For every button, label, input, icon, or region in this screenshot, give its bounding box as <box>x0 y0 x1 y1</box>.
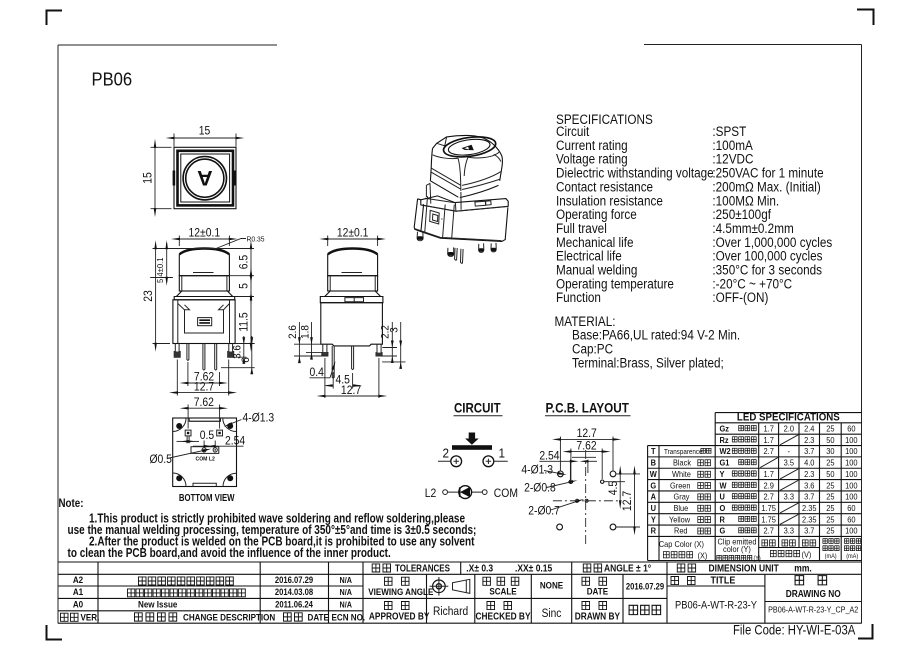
svg-text:Gray: Gray <box>674 492 690 501</box>
svg-text:-: - <box>788 447 791 456</box>
svg-text:50: 50 <box>826 436 835 445</box>
svg-text:.XX± 0.15: .XX± 0.15 <box>515 563 552 574</box>
svg-text:New Issue: New Issue <box>138 599 178 610</box>
svg-text:U: U <box>651 504 657 513</box>
svg-text:25: 25 <box>826 458 835 467</box>
svg-text:TOLERANCES: TOLERANCES <box>395 562 450 573</box>
svg-text:2.4: 2.4 <box>804 424 815 433</box>
svg-text:12±0.1: 12±0.1 <box>189 227 221 240</box>
svg-text:color (Y): color (Y) <box>723 544 751 553</box>
svg-text:2-Ø0.8: 2-Ø0.8 <box>524 482 556 495</box>
svg-text:3.5: 3.5 <box>784 458 795 467</box>
svg-text:100: 100 <box>845 447 858 456</box>
svg-text:A1: A1 <box>73 587 83 598</box>
svg-text:COM L2: COM L2 <box>196 456 215 462</box>
svg-text:W: W <box>720 481 728 490</box>
svg-text:DRAWN BY: DRAWN BY <box>575 611 620 622</box>
svg-text:R: R <box>651 526 657 535</box>
svg-text:NONE: NONE <box>540 580 563 591</box>
svg-text:100: 100 <box>845 470 858 479</box>
svg-text:60: 60 <box>847 424 856 433</box>
svg-text:2016.07.29: 2016.07.29 <box>275 575 314 586</box>
svg-text:N/A: N/A <box>339 600 352 610</box>
svg-text:100: 100 <box>845 458 858 467</box>
svg-text:7.62: 7.62 <box>576 440 596 453</box>
svg-text:3.7: 3.7 <box>804 447 814 456</box>
svg-text:3.6: 3.6 <box>804 481 815 490</box>
svg-text:25: 25 <box>826 481 835 490</box>
svg-text:1.75: 1.75 <box>761 515 776 524</box>
svg-text:2.7: 2.7 <box>763 526 773 535</box>
svg-text::OFF-(ON): :OFF-(ON) <box>712 289 768 305</box>
svg-text:3.7: 3.7 <box>804 492 814 501</box>
svg-text:COM: COM <box>494 487 518 500</box>
svg-text:12.7: 12.7 <box>622 491 635 511</box>
svg-text:Green: Green <box>670 481 691 490</box>
svg-text:Cap Color (X): Cap Color (X) <box>659 540 704 549</box>
svg-text:2.35: 2.35 <box>802 515 817 524</box>
svg-text:5.4±0.1: 5.4±0.1 <box>156 257 165 283</box>
svg-text:APPROVED BY: APPROVED BY <box>369 611 430 622</box>
svg-text:File Code: HY-WI-E-03A: File Code: HY-WI-E-03A <box>733 623 856 638</box>
svg-text:100: 100 <box>845 492 858 501</box>
svg-text:DIMENSION UNIT: DIMENSION UNIT <box>709 563 780 574</box>
svg-text:(mA): (mA) <box>846 554 858 560</box>
svg-text:100: 100 <box>845 481 858 490</box>
svg-text:L2: L2 <box>425 487 437 500</box>
svg-text:1.7: 1.7 <box>763 424 773 433</box>
svg-text:4.5: 4.5 <box>607 481 620 495</box>
svg-text:2.9: 2.9 <box>763 481 773 490</box>
svg-text:50: 50 <box>826 470 835 479</box>
svg-text:T: T <box>651 447 656 456</box>
svg-text:2.0: 2.0 <box>784 424 795 433</box>
svg-text:CHANGE DESCRIPTION: CHANGE DESCRIPTION <box>183 612 275 623</box>
svg-text:25: 25 <box>826 515 835 524</box>
svg-text:Black: Black <box>673 458 691 467</box>
svg-text:G1: G1 <box>720 458 731 467</box>
svg-text:2.7: 2.7 <box>763 492 773 501</box>
svg-text:PB06-A-WT-R-23-Y: PB06-A-WT-R-23-Y <box>675 600 757 612</box>
svg-text:W2: W2 <box>720 447 732 456</box>
svg-text:Transparence: Transparence <box>664 449 703 456</box>
svg-text:12.7: 12.7 <box>577 428 597 441</box>
svg-text:(V): (V) <box>802 550 812 559</box>
svg-text:W: W <box>650 470 658 479</box>
svg-text:2-Ø0.7: 2-Ø0.7 <box>528 505 560 518</box>
svg-text:ECN NO.: ECN NO. <box>332 612 366 623</box>
svg-text:2.35: 2.35 <box>802 504 817 513</box>
svg-text:1.7: 1.7 <box>763 436 773 445</box>
svg-text:3.3: 3.3 <box>784 526 795 535</box>
svg-text:Note:: Note: <box>59 497 84 510</box>
svg-text:O: O <box>720 504 726 513</box>
svg-text:0.5: 0.5 <box>200 430 214 443</box>
svg-text:25: 25 <box>826 504 835 513</box>
svg-text:1.8: 1.8 <box>300 325 312 339</box>
svg-text:1.75: 1.75 <box>761 504 776 513</box>
svg-text:2.3: 2.3 <box>804 436 815 445</box>
svg-text:Yellow: Yellow <box>669 515 690 524</box>
svg-text:SCALE: SCALE <box>489 586 516 597</box>
svg-text:0.4: 0.4 <box>310 367 324 380</box>
svg-text:Gz: Gz <box>720 424 730 433</box>
svg-text:G: G <box>720 526 726 535</box>
svg-text:3.7: 3.7 <box>804 526 814 535</box>
svg-text:23: 23 <box>142 290 155 302</box>
svg-text:1.7: 1.7 <box>763 470 773 479</box>
svg-text:A2: A2 <box>73 575 83 586</box>
svg-text:DATE: DATE <box>308 612 329 623</box>
svg-text:P.C.B. LAYOUT: P.C.B. LAYOUT <box>546 400 630 416</box>
svg-text:2.54: 2.54 <box>225 435 245 448</box>
svg-text:to clean the PCB board,and avo: to clean the PCB board,and avoid the inf… <box>68 547 391 560</box>
svg-text:4-Ø1.3: 4-Ø1.3 <box>521 464 553 477</box>
svg-text:DRAWING NO: DRAWING NO <box>786 588 841 599</box>
svg-text:2016.07.29: 2016.07.29 <box>626 581 665 592</box>
svg-text:60: 60 <box>847 504 856 513</box>
svg-text:(X): (X) <box>698 551 708 560</box>
svg-text:2014.03.08: 2014.03.08 <box>275 587 314 598</box>
svg-text:DATE: DATE <box>587 586 608 597</box>
svg-text:2: 2 <box>443 446 450 461</box>
svg-text:12.7: 12.7 <box>194 381 214 394</box>
svg-text:5: 5 <box>238 283 251 289</box>
svg-text:15: 15 <box>142 172 155 184</box>
svg-text:CIRCUIT: CIRCUIT <box>454 401 501 416</box>
svg-text:Ø0.5: Ø0.5 <box>150 454 172 467</box>
svg-text:CHECKED BY: CHECKED BY <box>476 611 531 622</box>
svg-text:A: A <box>651 492 657 501</box>
svg-text:(Y): (Y) <box>754 556 761 562</box>
svg-text:BOTTOM VIEW: BOTTOM VIEW <box>179 492 235 503</box>
svg-text:R0.35: R0.35 <box>247 235 265 243</box>
svg-text:11.5: 11.5 <box>238 312 251 331</box>
svg-text:Y: Y <box>720 470 726 479</box>
svg-text:4.0: 4.0 <box>804 458 815 467</box>
svg-text:Function: Function <box>556 289 601 305</box>
svg-text:mm.: mm. <box>794 563 811 574</box>
svg-text:Richard: Richard <box>433 606 468 619</box>
svg-text:TITLE: TITLE <box>711 575 736 587</box>
svg-text:White: White <box>672 470 691 479</box>
svg-text:PB06: PB06 <box>92 69 133 90</box>
svg-text:PB06-A-WT-R-23-Y_CP_A2: PB06-A-WT-R-23-Y_CP_A2 <box>768 605 858 615</box>
svg-text:(mA): (mA) <box>825 554 837 560</box>
svg-text:N/A: N/A <box>339 588 352 598</box>
svg-text:ANGLE ± 1°: ANGLE ± 1° <box>604 563 651 574</box>
svg-text:2.6: 2.6 <box>288 325 300 339</box>
svg-text:.X± 0.3: .X± 0.3 <box>466 563 493 574</box>
svg-text:Y: Y <box>651 515 657 524</box>
svg-text:1: 1 <box>499 446 506 461</box>
svg-text:12.7: 12.7 <box>341 385 361 398</box>
svg-text:6.5: 6.5 <box>238 255 251 269</box>
svg-text:2011.06.24: 2011.06.24 <box>275 599 313 610</box>
svg-text:N/A: N/A <box>339 576 352 586</box>
svg-text:60: 60 <box>847 515 856 524</box>
svg-text:3: 3 <box>389 327 401 333</box>
svg-text:A0: A0 <box>73 599 83 610</box>
svg-text:4-Ø1.3: 4-Ø1.3 <box>243 412 275 425</box>
svg-text:100: 100 <box>845 526 858 535</box>
svg-text:Sinc: Sinc <box>542 607 562 620</box>
svg-text:15: 15 <box>199 125 211 138</box>
svg-text:Terminal:Brass, Silver plated;: Terminal:Brass, Silver plated; <box>572 355 724 371</box>
svg-text:7.62: 7.62 <box>194 396 214 409</box>
svg-text:G: G <box>650 481 656 490</box>
svg-text:12±0.1: 12±0.1 <box>337 227 369 240</box>
svg-text:VER.: VER. <box>81 612 100 623</box>
svg-text:VIEWING ANGLE: VIEWING ANGLE <box>368 587 433 598</box>
svg-text:R: R <box>720 515 726 524</box>
svg-text:Blue: Blue <box>674 504 689 513</box>
svg-text:B: B <box>651 458 657 467</box>
svg-text:2.7: 2.7 <box>763 447 773 456</box>
svg-text:100: 100 <box>845 436 858 445</box>
svg-text:LED SPECIFICATIONS: LED SPECIFICATIONS <box>737 412 840 424</box>
svg-text:25: 25 <box>826 526 835 535</box>
svg-text:3.6: 3.6 <box>232 345 244 359</box>
svg-text:2.3: 2.3 <box>804 470 815 479</box>
svg-text:2.54: 2.54 <box>539 450 559 463</box>
svg-text:30: 30 <box>826 447 835 456</box>
svg-text:A: A <box>197 166 213 190</box>
svg-text:6: 6 <box>241 357 253 363</box>
svg-text:Red: Red <box>674 526 688 535</box>
svg-text:U: U <box>720 492 726 501</box>
svg-text:3.3: 3.3 <box>784 492 795 501</box>
svg-text:Rz: Rz <box>720 436 729 445</box>
svg-text:25: 25 <box>826 424 835 433</box>
svg-text:25: 25 <box>826 492 835 501</box>
